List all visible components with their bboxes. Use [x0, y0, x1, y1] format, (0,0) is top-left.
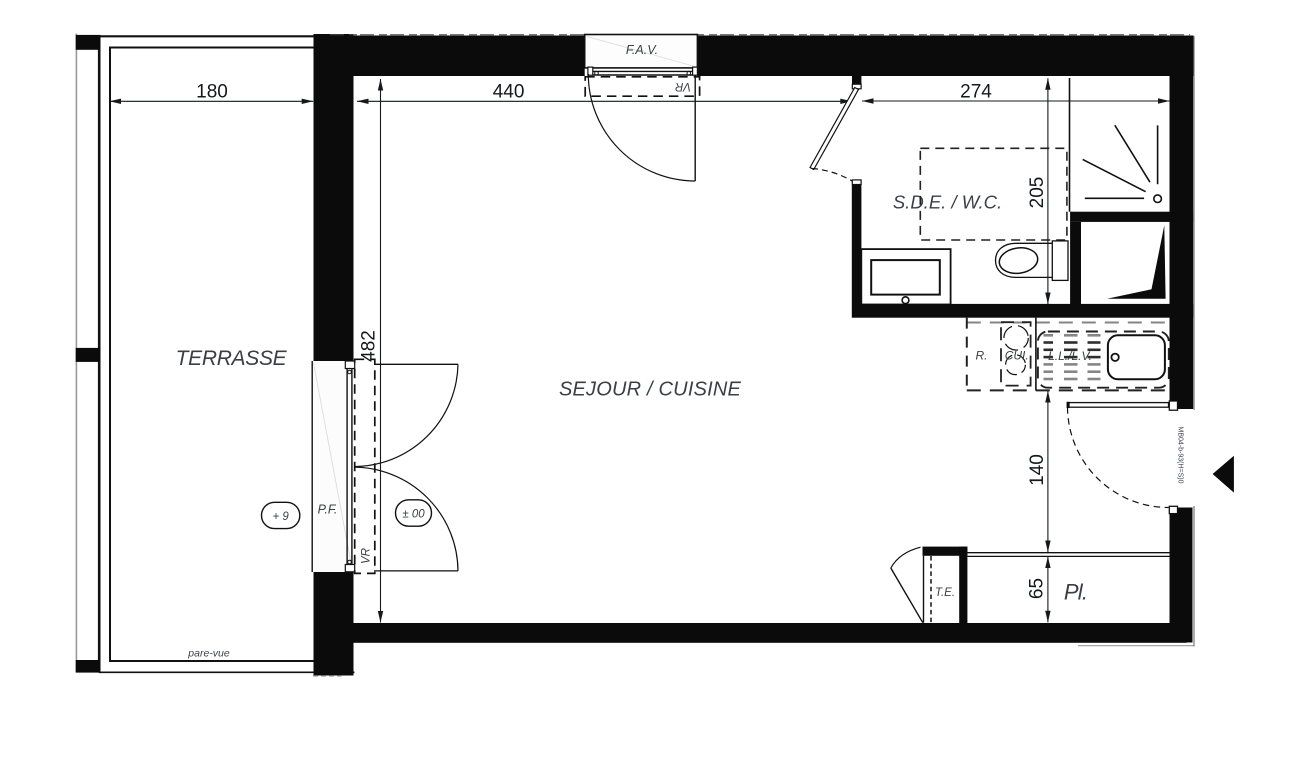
svg-text:180: 180	[196, 82, 228, 103]
svg-text:T.E.: T.E.	[935, 587, 955, 599]
svg-text:R.: R.	[976, 349, 988, 363]
svg-text:F.A.V.: F.A.V.	[626, 43, 658, 57]
svg-text:S.D.E. / W.C.: S.D.E. / W.C.	[893, 192, 1002, 213]
svg-text:CUI.: CUI.	[1005, 349, 1029, 363]
svg-text:TERRASSE: TERRASSE	[176, 347, 288, 370]
svg-text:140: 140	[1027, 454, 1048, 486]
svg-text:274: 274	[960, 82, 992, 103]
svg-text:± 00: ± 00	[402, 509, 425, 521]
svg-text:65: 65	[1027, 578, 1048, 599]
svg-text:pare-vue: pare-vue	[187, 648, 230, 660]
svg-text:VR: VR	[360, 548, 372, 564]
svg-text:MB04-b-93(H=S)0: MB04-b-93(H=S)0	[1177, 427, 1184, 484]
svg-text:Pl.: Pl.	[1064, 580, 1087, 605]
svg-text:+ 9: + 9	[272, 511, 289, 523]
svg-text:P.F.: P.F.	[318, 503, 338, 517]
svg-text:440: 440	[493, 82, 525, 103]
svg-text:482: 482	[359, 330, 380, 362]
svg-text:SEJOUR / CUISINE: SEJOUR / CUISINE	[559, 379, 742, 401]
svg-text:205: 205	[1027, 177, 1048, 209]
svg-text:VR: VR	[675, 80, 691, 92]
